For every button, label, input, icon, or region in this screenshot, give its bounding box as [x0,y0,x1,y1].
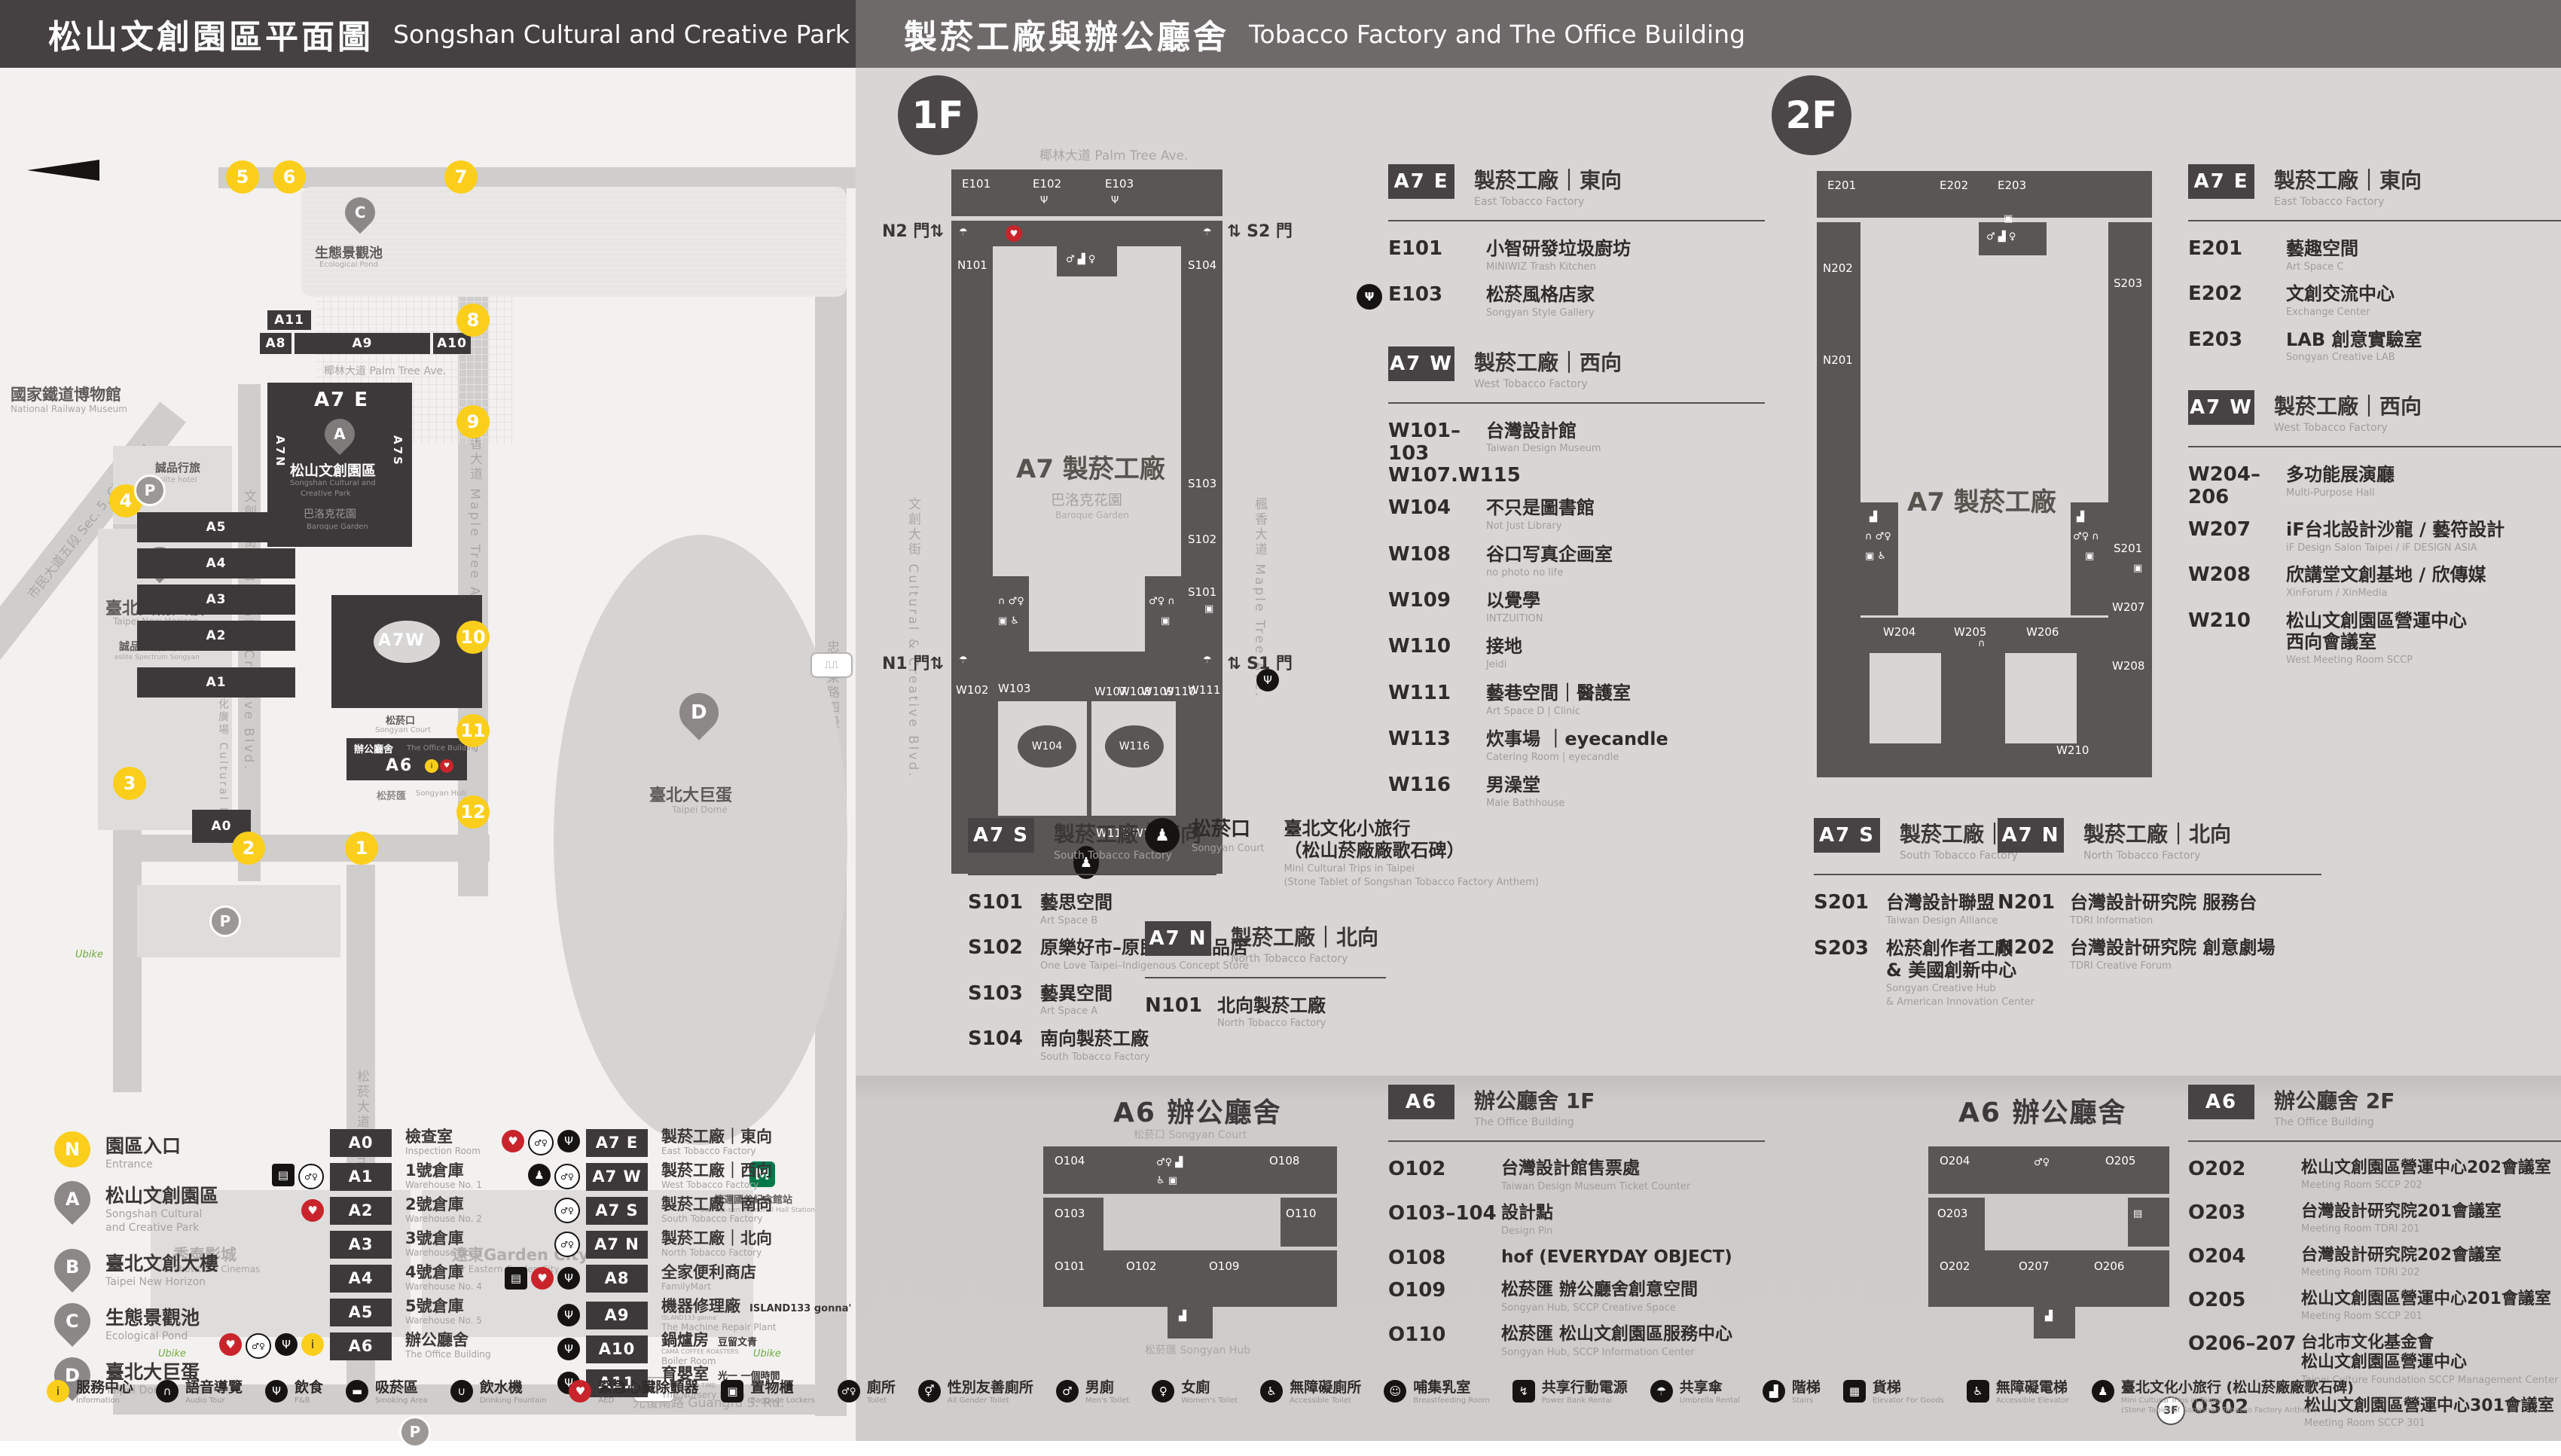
legend-block-row: ♂♀ A7 N 製菸工廠｜北向 North Tobacco Factory [467,1230,781,1259]
legend-block-row: ♥ ♂♀ Ψ A7 E 製菸工廠｜東向 East Tobacco Factory [467,1128,781,1157]
room-label: O101 [1055,1259,1085,1273]
facility-icon: ☂ [1650,1380,1673,1403]
legend-icon: ♂♀ [528,1130,554,1155]
legend-icon: ▤ [505,1267,527,1290]
map-building: A4 [137,548,295,578]
floor-2f-badge: 2F [1772,75,1851,155]
entrance-number: 1 [345,832,378,865]
map-building: A3 [137,585,295,615]
plan-icon: ♂♀ ∩ [2073,531,2099,542]
room-label: W110 [1163,685,1195,698]
room-label: W204 [1883,625,1915,639]
plan-1f: W104 W116 A7 製菸工廠 巴洛克花園 Baroque Garden ♟… [951,169,1223,874]
legend-icon: i [301,1333,324,1356]
plan-icon: ▣ [2004,213,2013,224]
facility-legend-item: i 服務中心 Information [47,1380,133,1406]
fnb-icon: Ψ [1256,669,1279,691]
facility-legend-item: Ψ 飲食 F&B [265,1380,323,1406]
plan-icon: ∩ ♂♀ [1865,531,1891,542]
legend-block-row: ▤ ♥ Ψ A8 全家便利商店 FamilyMart [467,1264,765,1293]
room-label: S102 [1188,533,1216,546]
pin-a: A [319,413,362,456]
room-entry: W113 炊事場 ｜eyecandleCatering Room | eyeca… [1388,728,1765,765]
room-entry: W207 iF台北設計沙龍 / 藝符設計iF Design Salon Taip… [2188,519,2561,554]
listing-1f-court-north: ♟ 松菸口 Songyan Court 臺北文化小旅行 （松山菸廠廠歌石碑） M… [1145,818,1386,1056]
room-label: O110 [1286,1207,1316,1220]
facility-legend-item: ☂ 共享傘 Umbrella Rental [1650,1380,1740,1406]
plan-icon: ▟ [1179,1311,1186,1322]
facility-legend-item: ♟ 臺北文化小旅行 (松山菸廠廠歌石碑) Mini Cultural Trips… [2092,1380,2354,1415]
entrance-number: 10 [456,621,490,654]
room-label: E103 [1105,177,1134,191]
facility-legend-item: ▣ 置物櫃 Baggage Lockers [721,1380,814,1406]
legend-icon: Ψ [275,1333,298,1356]
room-entry: W108 谷口写真企画室no photo no life [1388,544,1765,580]
room-label: S201 [2114,542,2142,555]
facility-icon: i [47,1380,69,1403]
room-label: W207 [2112,600,2144,614]
room-w104-oval: W104 [1018,725,1076,768]
room-entry: O204 台灣設計研究院202會議室Meeting Room TDRI 202 [2188,1246,2561,1280]
room-label: O108 [1269,1154,1299,1168]
parking-icon: P [399,1416,431,1448]
plan-icon: ▣ [2085,551,2094,562]
room-entry: W204–206 多功能展演廳Multi-Purpose Hall [2188,464,2561,509]
facility-legend-item: ♀ 女廁 Women's Toilet [1152,1380,1238,1406]
legend-icon: ♥ [502,1130,524,1152]
room-entry: O102 台灣設計館售票處Taiwan Design Museum Ticket… [1388,1158,1765,1193]
listing-1f-east-west: A7 E 製菸工廠｜東向East Tobacco Factory E101 小智… [1388,164,1765,837]
legend-pin: C [47,1296,98,1347]
plan-icon: ▤ [2133,1208,2142,1219]
plan-icon: ▣ [1161,615,1170,627]
plan-icon: Ψ [1111,195,1119,206]
entrance-number: 2 [232,832,265,865]
legend-block-row: ♟ ♂♀ A7 W 製菸工廠｜西向 West Tobacco Factory [467,1162,781,1191]
room-entry: O202 松山文創園區營運中心202會議室Meeting Room SCCP 2… [2188,1158,2561,1192]
room-label: N101 [957,258,987,272]
listing-office-1f: A6 辦公廳舍 1FThe Office Building O102 台灣設計館… [1388,1085,1765,1384]
legend-icon: Ψ [557,1304,580,1326]
room-entry: E203 LAB 創意實驗室Songyan Creative LAB [2188,329,2561,365]
legend-block-row: Ψ A10 鍋爐房豆留文青 CAMA COFFEE ROASTERS Boile… [467,1332,757,1367]
room-label: E101 [962,177,991,191]
entrance-number: 9 [456,405,490,438]
legend-pin: A [47,1174,98,1225]
room-entry: W111 藝巷空間｜醫護室Art Space D | Clinic [1388,682,1765,719]
room-label: O206 [2094,1259,2124,1273]
facility-legend-item: ▦ 貨梯 Elevator For Goods [1843,1380,1944,1406]
room-label: S203 [2114,276,2142,290]
listing-2f-north: A7 N 製菸工廠｜北向North Tobacco Factory N201 台… [1998,818,2321,999]
plan-icon: ☂ [1203,227,1212,238]
legend-place: N 園區入口 Entrance [54,1131,181,1172]
map-building: A9 [295,333,430,354]
facility-legend-item: ☺ 哺集乳室 Breastfeeding Room [1384,1380,1489,1406]
facility-icon: ♿ [1260,1380,1283,1403]
road [113,835,490,862]
room-label: W102 [956,683,988,697]
legend-icon: Ψ [557,1130,580,1152]
legend-icon: Ψ [557,1267,580,1290]
legend-icon: ♂♀ [554,1164,580,1189]
north-arrow-icon [27,160,99,181]
legend-block-row: A5 5號倉庫 Warehouse No. 5 [211,1298,482,1326]
facility-legend-item: ♥ 緊急心臟除顫器 AED [569,1380,698,1406]
room-entry: W110 接地Jeidi [1388,636,1765,672]
legend-block-row: A4 4號倉庫 Warehouse No. 4 [211,1264,482,1293]
office-1f-title: A6 辦公廳舍 [1113,1091,1281,1130]
legend-icon: ♂♀ [554,1232,580,1257]
facility-icon: ▦ [1843,1380,1866,1403]
room-entry: W210 松山文創園區營運中心西向會議室West Meeting Room SC… [2188,610,2561,667]
legend-icon: ♂♀ [554,1198,580,1223]
facility-icon: ⚥ [918,1380,941,1403]
facility-icon: ♥ [569,1380,591,1403]
room-label: O109 [1209,1259,1239,1273]
room-entry: O109 松菸匯 辦公廳舍創意空間Songyan Hub, SCCP Creat… [1388,1280,1765,1314]
room-label: S104 [1188,258,1216,272]
facility-icon: ∩ [156,1380,179,1403]
room-entry: O203 台灣設計研究院201會議室Meeting Room TDRI 201 [2188,1202,2561,1236]
facility-legend-item: ♂ 男廁 Men's Toilet [1056,1380,1129,1406]
entrance-number: 7 [444,160,478,194]
legend-place: B 臺北文創大樓 Taipei New Horizon [54,1249,218,1290]
facility-icon: ♿ [1967,1380,1989,1403]
plan-icon: ▟ [2077,511,2084,523]
plan-icon: ♂ ▟ ♀ [1986,231,2016,243]
room-label: E202 [1940,179,1968,192]
legend-place: C 生態景觀池 Ecological Pond [54,1303,200,1344]
listing-section: A7 W 製菸工廠｜西向West Tobacco Factory W101–10… [1388,346,1765,811]
room-entry: W116 男澡堂Male Bathhouse [1388,774,1765,810]
room-label: S101 [1188,585,1216,599]
listing-2f-south: A7 S 製菸工廠｜南向South Tobacco Factory S201 台… [1814,818,2002,1035]
gate-label: ⇅ S2 門 [1227,218,1293,242]
a7w-map-block: A7W [331,595,482,708]
room-label: E203 [1998,179,2026,192]
header-left: 松山文創園區平面圖 Songshan Cultural and Creative… [0,0,856,68]
taipei-dome [554,535,847,1145]
room-entry: E201 藝趣空間Art Space C [2188,238,2561,273]
room-label: N201 [1823,353,1853,367]
plan-icon: ▣ ♿ [998,615,1019,627]
map-building: A8 [260,333,292,354]
room-entry: W101–103W107.W115 台灣設計館Taiwan Design Mus… [1388,420,1765,488]
legend-icon: ♥ [219,1333,242,1356]
plan-icon: ♂ ▟ ♀ [1066,254,1095,265]
room-label: S103 [1188,477,1216,490]
parking-icon: P [209,905,241,937]
plan-icon: ☂ [1203,655,1212,666]
plan-icon: ▟ [2045,1311,2053,1322]
legend-icon: ♥ [301,1199,324,1222]
listing-2f-east-west: A7 E 製菸工廠｜東向East Tobacco Factory E201 藝趣… [2188,164,2561,693]
plan-office-1f: 松菸口 Songyan Court O104 O108 O103 O110 O1… [1021,1130,1360,1356]
facility-legend-item: ↯ 共享行動電源 Power Bank Rental [1512,1380,1628,1406]
legend-icon: ♂♀ [298,1164,324,1189]
section-title-zh: 製菸工廠與辦公廳舍 [904,10,1229,58]
room-entry: W208 欣講堂文創基地 / 欣傳媒XinForum / XinMedia [2188,564,2561,600]
entrance-number: 5 [226,160,259,194]
room-label: O205 [2105,1154,2135,1168]
palm-ave-label: 椰林大道 Palm Tree Ave. [324,363,447,378]
plan-icon: ♂♀ [2034,1157,2050,1168]
entrance-number: 3 [113,767,146,800]
plan-icon: ♿ ▣ [1156,1175,1177,1186]
street-left-1f: 文創大街 Cultural & Creative Blvd. [904,497,923,779]
facility-icon: ♟ [2092,1380,2114,1403]
room-label: O203 [1937,1207,1967,1220]
facility-legend-item: ⚥ 性別友善廁所 All Gender Toilet [918,1380,1033,1406]
entrance-number: 12 [456,795,490,829]
room-entry: O103–104 設計點Design Pin [1388,1203,1765,1238]
parking-icon: P [134,475,166,506]
facility-legend-item: ▬ 吸菸區 Smoking Area [346,1380,428,1406]
facility-legend-item: ♿ 無障礙電梯 Accessible Elevator [1967,1380,2069,1406]
room-label: W208 [2112,659,2144,673]
plan-2f: A7 製菸工廠 E201 E202 E203 N202 N201 S203 S2… [1817,171,2152,777]
entrance-number: 8 [456,304,490,337]
entrance-number: 11 [456,714,490,747]
legend-place: A 松山文創園區 Songshan Cultural and Creative … [54,1181,218,1235]
room-entry: O108 hof (EVERYDAY OBJECT) [1388,1247,1765,1270]
plan-icon: ▣ ♿ [1865,551,1886,562]
room-entry: E202 文創交流中心Exchange Center [2188,283,2561,319]
facility-legend-item: ▟ 階梯 Stairs [1763,1380,1821,1406]
room-entry: N201 台灣設計研究院 服務台TDRI Information [1998,892,2321,927]
plan-icon: ∩ ♂♀ [998,596,1024,607]
room-entry: N101 北向製菸工廠North Tobacco Factory [1145,995,1386,1030]
gate-label: N1 門⇅ [882,650,944,674]
floor-1f-badge: 1F [898,75,978,155]
facility-icon: ∪ [450,1380,473,1403]
room-label: O202 [1940,1259,1970,1273]
room-label: O207 [2019,1259,2049,1273]
room-entry: S203 松菸創作者工廠& 美國創新中心Songyan Creative Hub… [1814,938,2002,1009]
room-entry: O205 松山文創園區營運中心201會議室Meeting Room SCCP 2… [2188,1290,2561,1323]
statue-icon: ♟ [1145,818,1180,853]
facility-legend-item: ∩ 語音導覽 Audio Tour [156,1380,243,1406]
plan-icon: ∩ [1978,638,1986,649]
plan-icon: Ψ [1040,195,1048,206]
room-label: O204 [1940,1154,1970,1168]
ubike-label: Ubike [75,949,103,960]
facility-icon: ▟ [1763,1380,1785,1403]
facility-legend-item: ♿ 無障礙廁所 Accessible Toilet [1260,1380,1361,1406]
park-map-panel: 光復南路 Guangfu S. Rd. 菸廠路 Yanchang Rd. 文創大… [0,68,856,1441]
room-entry: E101 小智研發垃圾廚坊MINIWIZ Trash Kitchen [1388,238,1765,274]
facility-icon: ♂ [1056,1380,1079,1403]
listing-section: A7 E 製菸工廠｜東向East Tobacco Factory E101 小智… [1388,164,1765,321]
legend-icon: ▤ [272,1164,295,1186]
legend-icon: Ψ [557,1338,580,1360]
map-building: A10 [433,333,471,354]
legend-icon: ♂♀ [246,1333,271,1359]
road [218,167,856,188]
room-label: E102 [1033,177,1061,191]
legend-block-row: ▤ ♂♀ A1 1號倉庫 Warehouse No. 1 [211,1162,482,1191]
room-label: W206 [2026,625,2059,639]
room-entry: O110 松菸匯 松山文創園區服務中心Songyan Hub, SCCP Inf… [1388,1324,1765,1359]
songyan-court-entry: ♟ 松菸口 Songyan Court 臺北文化小旅行 （松山菸廠廠歌石碑） M… [1145,818,1386,890]
a7e-map-block: A7 E A7N A7S A 松山文創園區 Songshan Cultural … [267,383,412,547]
facility-icon: ▣ [721,1380,743,1403]
legend-pin: N [54,1131,90,1168]
room-label: O104 [1055,1154,1085,1168]
map-building: A2 [137,621,295,651]
room-entry: Ψ E103 松菸風格店家Songyan Style Gallery [1388,284,1765,320]
gate-label: N2 門⇅ [882,218,944,242]
room-entry: N202 台灣設計研究院 創意劇場TDRI Creative Forum [1998,937,2321,972]
facility-icon-strip: i 服務中心 Information ∩ 語音導覽 Audio Tour Ψ 飲… [47,1380,2532,1415]
palm-ave-label-1f: 椰林大道 Palm Tree Ave. [1039,145,1188,163]
info-icon: i [425,759,438,773]
a6-map-block: 辦公廳舍 The Office Building A6 i ♥ [346,738,467,780]
room-label: W210 [2056,743,2089,757]
room-label: O102 [1126,1259,1156,1273]
legend-block-row: ♥ ♂♀ Ψ i A6 辦公廳舍 The Office Building [211,1332,491,1360]
header-right: 製菸工廠與辦公廳舍 Tobacco Factory and The Office… [856,0,2561,68]
room-label: W205 [1954,625,1986,639]
plan-office-2f: O204 O205 O203 O202 O207 O206 ♂♀ ▤ ▟ [1913,1130,2184,1356]
room-entry: W104 不只是圖書館Not Just Library [1388,497,1765,533]
legend-block-row: Ψ A9 機器修理廠ISLAND133 gonna' ISLAND133 gon… [467,1298,851,1333]
facility-icon: ▬ [346,1380,368,1403]
facility-legend-item: ♂♀ 廁所 Toilet [838,1380,896,1406]
entrance-number: 6 [273,160,306,194]
road-label: 楓香大道 Maple Tree Ave. [465,422,484,623]
room-label: N202 [1823,261,1853,275]
legend-icon: ♟ [528,1164,551,1186]
page-title-zh: 松山文創園區平面圖 [48,10,374,58]
legend-block-row: A0 檢查室 Inspection Room [211,1128,481,1157]
facility-icon: Ψ [265,1380,288,1403]
plan-icon: ♂♀ ∩ [1149,596,1175,607]
room-entry: W109 以覺學INTZUITION [1388,590,1765,626]
legend-pin: B [47,1241,98,1293]
legend-icon: ♥ [531,1267,554,1290]
map-building: A11 [267,310,311,330]
railway-museum-label: 國家鐵道博物館 [11,383,121,405]
plan-icon: ☂ [959,227,968,238]
section-title-en: Tobacco Factory and The Office Building [1249,20,1745,49]
room-label: W103 [998,682,1030,695]
plan-icon: ▟ [1870,511,1877,523]
ecological-pond [301,187,847,297]
room-w116-oval: W116 [1105,725,1164,768]
plan-icon: ☂ [959,655,968,666]
legend-block-row: ♥ A2 2號倉庫 Warehouse No. 2 [211,1196,482,1225]
room-label: E201 [1827,179,1856,192]
plan-icon: ▣ [1204,603,1213,615]
facility-icon: ♀ [1152,1380,1174,1403]
aed-icon: ♥ [440,759,453,773]
aed-icon: ♥ [1006,225,1022,242]
room-label: O103 [1055,1207,1085,1220]
facility-icon: ♂♀ [838,1380,860,1403]
bus-stop-icon: ⎍⎍ [810,652,853,678]
ubike-label: Ubike [753,1348,781,1360]
map-building: A1 [137,667,295,697]
legend-block-row: A3 3號倉庫 Warehouse No. 3 [211,1230,482,1259]
office-2f-title: A6 辦公廳舍 [1958,1091,2126,1130]
plan-icon: ▣ [2133,563,2142,574]
facility-legend-item: ∪ 飲水機 Drinking Fountain [450,1380,547,1406]
facility-icon: ↯ [1512,1380,1535,1403]
plan-icon: ♂♀ ▟ [1156,1157,1183,1168]
legend-block-row: ♂♀ A7 S 製菸工廠｜南向 South Tobacco Factory [467,1196,781,1225]
gate-label: ⇅ S1 門 [1227,650,1293,674]
facility-icon: ☺ [1384,1380,1406,1403]
room-entry: S201 台灣設計聯盟Taiwan Design Alliance [1814,892,2002,928]
